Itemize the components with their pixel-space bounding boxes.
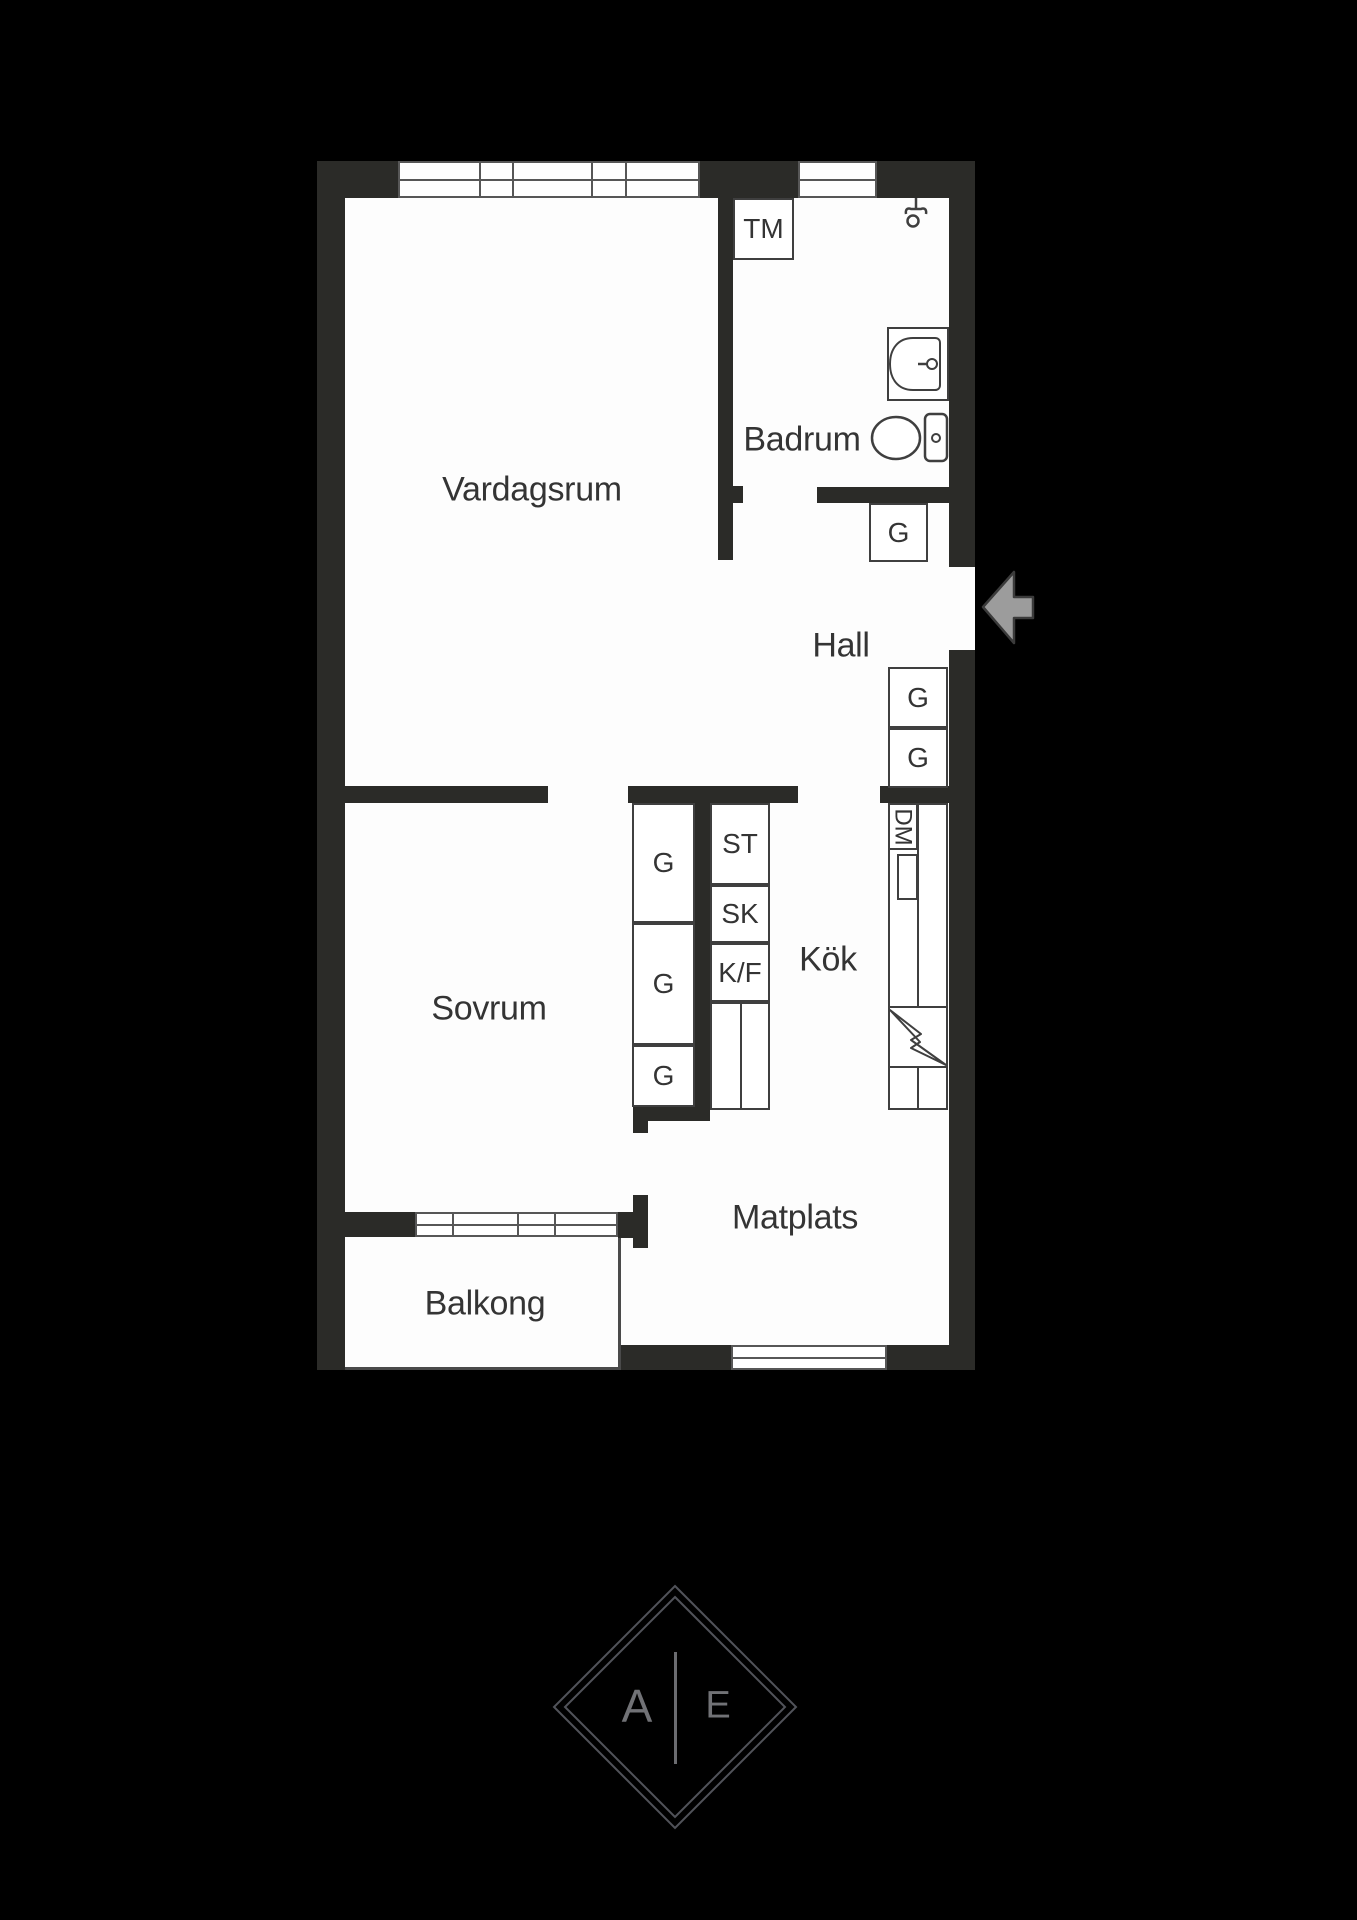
stove-icon [890, 1010, 946, 1065]
logo-letter-a: A [622, 1679, 653, 1733]
shower-icon [906, 198, 926, 227]
floorplan-canvas: TM G G G G G G ST SK K/F DM Vardagsrum B… [0, 0, 1357, 1920]
entry-arrow-icon [983, 572, 1033, 643]
logo-letter-e: E [705, 1685, 730, 1728]
fixtures-layer [0, 0, 1357, 1920]
bathroom-sink-icon [888, 328, 948, 400]
toilet-icon [872, 414, 947, 461]
